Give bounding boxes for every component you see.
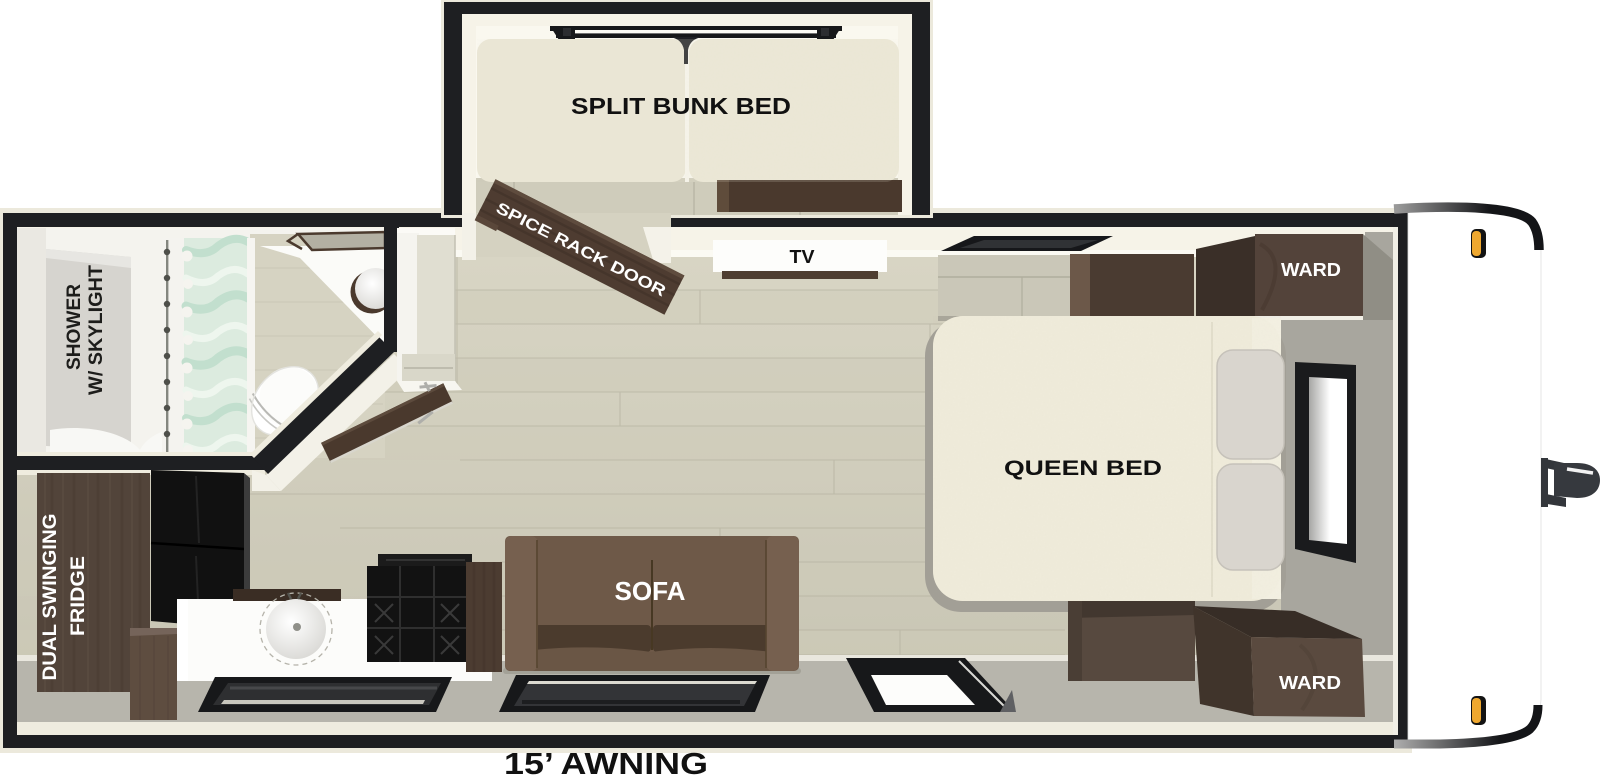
svg-text:15’ AWNING: 15’ AWNING xyxy=(504,746,708,776)
svg-text:WARD: WARD xyxy=(1281,260,1341,280)
svg-text:FRIDGE: FRIDGE xyxy=(68,556,89,636)
svg-text:TV: TV xyxy=(790,247,815,267)
svg-text:DUAL SWINGING: DUAL SWINGING xyxy=(40,514,61,681)
svg-text:QUEEN BED: QUEEN BED xyxy=(1004,457,1162,480)
svg-text:SHOWER: SHOWER xyxy=(64,284,85,370)
svg-text:W/ SKYLIGHT: W/ SKYLIGHT xyxy=(86,265,107,395)
svg-text:SPLIT BUNK BED: SPLIT BUNK BED xyxy=(571,93,791,119)
svg-text:WARD: WARD xyxy=(1279,673,1341,693)
svg-text:SOFA: SOFA xyxy=(615,576,686,606)
